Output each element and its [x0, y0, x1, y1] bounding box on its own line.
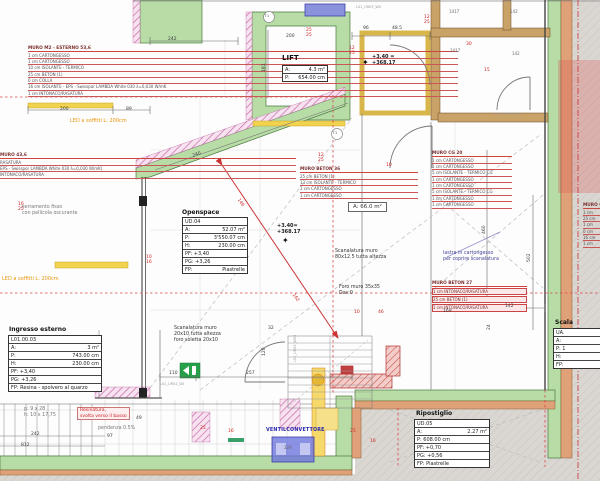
ripostiglio-title: Ripostiglio	[416, 410, 452, 417]
dimension-label: 229	[284, 446, 292, 451]
info-row: A:4.3 m²	[283, 66, 327, 73]
wall-spec-line: 1 cm CARTONGESSO	[300, 193, 418, 199]
wall-spec-cg20: MURO CG 201 cm CARTONGESSO1 cm CARTONGES…	[432, 151, 512, 209]
dimension-label: T1	[333, 131, 338, 136]
info-row: PG: +0,56	[415, 451, 489, 459]
dimension-label: L01_UR05_W05	[494, 112, 521, 116]
dimension-label: L01_UR03_W0	[356, 5, 381, 9]
lift-title: LIFT	[282, 54, 299, 62]
dimension-label: 46	[378, 310, 384, 315]
dimension-label: 32	[268, 326, 274, 331]
info-row: A:3 m²	[9, 343, 101, 351]
wall-spec-title: MURO 43,6	[0, 153, 296, 159]
openspace-title: Openspace	[182, 209, 219, 216]
dimension-label: 181	[262, 63, 267, 72]
info-row: FP: Piastrelle	[415, 459, 489, 467]
dimension-label: 502	[527, 253, 532, 262]
dimension-label: Resinatura, svolta verso il basso	[77, 407, 130, 420]
dimension-label: lastra in cartongesso per coprire scanal…	[443, 251, 499, 263]
info-row: H:	[554, 352, 600, 360]
info-row: H:230.00 cm	[9, 359, 101, 367]
dimension-label: +3.40 = +368.17	[372, 54, 395, 66]
dimension-label: 257	[246, 371, 255, 376]
dimension-label: Scanalatura muro 80x12.5 tutta altezza	[335, 249, 386, 261]
dimension-label: 96	[363, 26, 369, 31]
dimension-label: 12 25	[424, 15, 430, 26]
dimension-label: 12 25	[318, 153, 324, 164]
info-row: PF: +3,40	[183, 249, 247, 257]
wall-spec-title: MURO M2 - ESTERNO 53,6	[28, 46, 458, 52]
ripostiglio-info-box: UD.05A:2.27 m²P: 608.00 cmPF: +0,70PG: +…	[414, 419, 490, 468]
dimension-label: L01_UR02_W03	[293, 335, 297, 362]
info-row: UD.05	[415, 420, 489, 427]
area-label: A: 66.0 m²	[348, 202, 387, 212]
dimension-label: L01_UR02_D0	[160, 382, 184, 386]
info-row: A:2.27 m²	[415, 427, 489, 435]
dimension-label: 48.5	[392, 26, 402, 31]
dimension-label: +3.40= +368.17	[277, 223, 300, 235]
dimension-label: 120	[262, 347, 267, 356]
exit-sign-icon	[180, 363, 200, 378]
dimension-label: 110	[169, 371, 178, 376]
info-row: P: 608.00 cm	[415, 435, 489, 443]
dimension-label: 24	[487, 324, 492, 330]
info-row: H:230.00 cm	[183, 241, 247, 249]
dimension-label: 460	[482, 225, 487, 234]
dimension-label: 16	[370, 439, 376, 444]
dimension-label: 25	[200, 426, 206, 431]
ingresso-title: Ingresso esterno	[9, 326, 66, 333]
dimension-label: 169	[443, 309, 452, 314]
scala-title: Scala	[555, 319, 573, 326]
dimension-label: LED a soffitti L: 200cm	[2, 276, 59, 282]
wall-spec-title: MURO CG 20	[432, 151, 512, 157]
openspace-info-box: UD.04A:52.07 m²P:3'550.07 cmH:230.00 cmP…	[182, 217, 248, 274]
dimension-label: pendenza 0.5%	[98, 426, 135, 432]
dimension-label: 49	[136, 416, 142, 421]
scala-info-box: UA.A:P: 1H:FP:	[553, 328, 600, 369]
dimension-label: serramento fisso con pellicola oscurante	[22, 205, 77, 217]
wall-spec-43: MURO 43,6RASATURAEPS - Swisspor LAMBDA W…	[0, 153, 296, 179]
info-row: UA.	[554, 329, 600, 336]
dimension-label: VENTILCONVETTORE	[266, 428, 325, 434]
info-row: FP: Resina - spolvero al quarzo	[9, 383, 101, 391]
dimension-label: 242	[31, 432, 40, 437]
dimension-label: 1417	[449, 10, 459, 15]
info-row: UD.04	[183, 218, 247, 225]
dimension-label: 25 25	[306, 28, 312, 39]
info-row: P: 1	[554, 344, 600, 352]
dimension-label: 30	[466, 42, 472, 47]
dimension-label: 15	[484, 68, 490, 73]
info-row: P:654.00 cm	[283, 73, 327, 81]
dimension-label: 242	[168, 37, 177, 42]
floor-plan: MURO M2 - ESTERNO 53,61 cm CARTONGESSO1 …	[0, 0, 600, 481]
info-row: PF: +0,70	[415, 443, 489, 451]
info-row: PG: +3,26	[9, 375, 101, 383]
ingresso-info-box: L01.00.03A:3 m²P:743.00 cmH:230.00 cmPF:…	[8, 335, 102, 392]
dimension-label: ✦	[362, 58, 369, 68]
dimension-label: 89	[126, 107, 132, 112]
lift-info-box: A:4.3 m²P:654.00 cm	[282, 65, 328, 82]
dimension-label: 97	[107, 434, 113, 439]
dimension-label: 10	[386, 163, 392, 168]
info-row: A:	[554, 336, 600, 344]
dimension-label: 142	[510, 10, 518, 15]
dimension-label: 200	[286, 34, 295, 39]
dimension-label: 1417	[450, 49, 460, 54]
wall-spec-line: 1 cm INTONACO/RASATURA	[432, 288, 527, 295]
info-row: A:52.07 m²	[183, 225, 247, 233]
info-row: PF: +3,40	[9, 367, 101, 375]
dimension-label: Scanalatura muro 20x10 tutta altezza for…	[174, 326, 221, 343]
wall-spec-line: 25 cm BETON (1)	[432, 296, 527, 303]
dimension-label: 812	[21, 443, 30, 448]
info-row: FP:	[554, 360, 600, 368]
info-row: L01.00.03	[9, 336, 101, 343]
dimension-label: 12 25	[349, 46, 355, 57]
wall-spec-line: 1 cm CARTONGESSO	[432, 202, 512, 208]
wall-spec-right: MURO C1 cm25 cm1 cm0 cm16 cm1 cm	[583, 203, 600, 248]
wall-spec-line: 1 cm	[583, 241, 600, 247]
wall-spec-title: MURO BETON 36	[300, 167, 418, 173]
info-row: P:3'550.07 cm	[183, 233, 247, 241]
dimension-label: 16	[228, 429, 234, 434]
dimension-label: 10	[354, 310, 360, 315]
info-row: PG: +3,26	[183, 257, 247, 265]
dimension-label: Foro muro 35x35 Dav:0	[339, 285, 380, 297]
dimension-label: LED a soffitti L: 200cm	[70, 118, 127, 124]
dimension-label: 25	[350, 429, 356, 434]
wall-spec-title: MURO C	[583, 203, 600, 209]
dimension-label: 142	[512, 52, 520, 57]
wall-spec-line: INTONACO/RASATURA	[0, 172, 296, 178]
wall-spec-title: MURO BETON 27	[432, 281, 527, 287]
red-overlay	[558, 60, 600, 193]
dimension-label: ✦	[282, 236, 289, 246]
duct-hatch	[330, 346, 400, 388]
dimension-label: 200	[60, 107, 69, 112]
wall-spec-beton36: MURO BETON 3625 cm BETON (1)13 cm ISOLAN…	[300, 167, 418, 199]
dimension-label: 10 16	[146, 255, 152, 266]
dimension-label: T1	[265, 14, 270, 19]
info-row: P:743.00 cm	[9, 351, 101, 359]
dimension-label: p: 9 x 28 h: 10 x 17,75	[24, 407, 56, 419]
info-row: FP:Piastrelle	[183, 265, 247, 273]
dimension-label: 142	[505, 304, 514, 309]
wall-spec-line: 1 cm INTONACO/RASATURA	[28, 91, 458, 97]
